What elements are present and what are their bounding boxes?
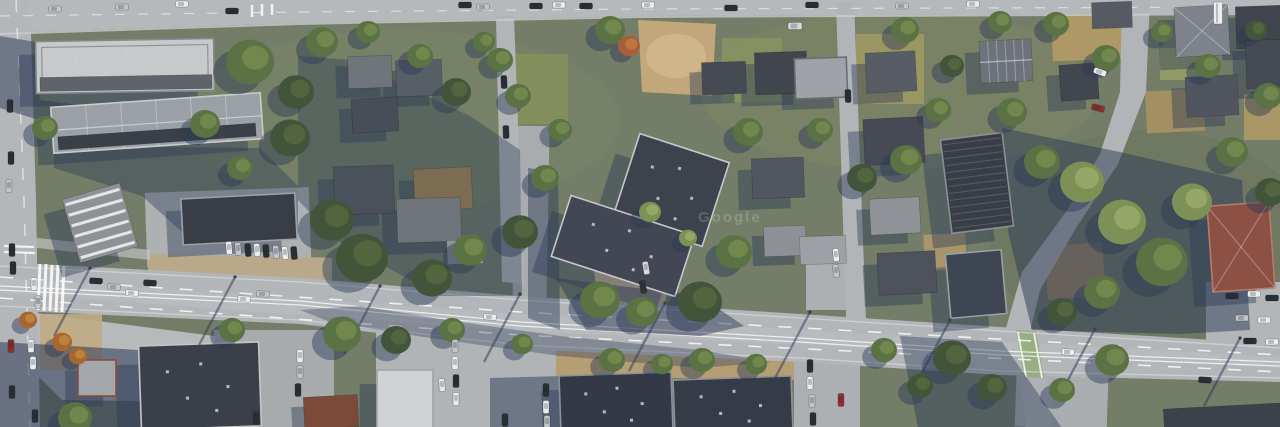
- roof: [1092, 1, 1133, 28]
- car: [810, 413, 816, 426]
- car: [477, 4, 490, 10]
- roof-vent: [748, 420, 751, 423]
- house: [1092, 1, 1133, 28]
- car: [9, 386, 15, 399]
- car-glass: [898, 4, 904, 8]
- car: [9, 244, 15, 257]
- car-glass: [839, 396, 843, 402]
- tree-canopy-highlight: [480, 35, 492, 46]
- white-commercial-building: [377, 370, 433, 427]
- car-glass: [298, 368, 302, 374]
- car-glass: [227, 244, 232, 250]
- car: [1226, 293, 1239, 299]
- car: [580, 3, 593, 9]
- roof: [751, 157, 804, 199]
- roof: [701, 61, 746, 95]
- roof-vent: [226, 385, 229, 388]
- car: [295, 384, 301, 397]
- car: [453, 375, 459, 388]
- car-glass: [544, 386, 548, 392]
- roof-vent: [75, 56, 78, 59]
- car: [553, 2, 566, 8]
- car: [459, 2, 472, 8]
- tree-canopy-highlight: [464, 238, 483, 255]
- long-dark-building: [941, 133, 1014, 234]
- car: [35, 296, 41, 309]
- car: [806, 2, 819, 8]
- car-glass: [92, 279, 98, 283]
- car-glass: [1238, 316, 1244, 320]
- car: [237, 296, 250, 303]
- car-glass: [532, 4, 538, 8]
- roof: [377, 370, 433, 427]
- car: [483, 314, 496, 321]
- car-glass: [246, 246, 251, 252]
- car: [6, 180, 12, 193]
- tree-canopy-highlight: [283, 124, 305, 144]
- car: [290, 246, 297, 259]
- tree-canopy-highlight: [608, 351, 622, 364]
- car-glass: [228, 9, 234, 13]
- car-glass: [9, 342, 13, 348]
- car: [967, 1, 980, 7]
- tree-canopy-highlight: [236, 159, 250, 172]
- car: [1258, 317, 1271, 323]
- car-glass: [808, 362, 812, 368]
- car-glass: [240, 297, 246, 301]
- car-glass: [453, 342, 457, 348]
- tree-canopy-highlight: [1057, 302, 1074, 317]
- tree-canopy-highlight: [1052, 15, 1066, 28]
- roof: [869, 197, 921, 236]
- house: [869, 197, 921, 236]
- tree-canopy-highlight: [200, 114, 217, 129]
- car-glass: [1246, 339, 1252, 343]
- tree-canopy-highlight: [816, 121, 830, 134]
- car: [125, 290, 138, 297]
- tree-canopy-highlight: [514, 220, 534, 238]
- car-glass: [461, 3, 467, 7]
- car-glass: [834, 267, 839, 273]
- car-glass: [453, 359, 457, 365]
- dark-building: [945, 250, 1006, 319]
- tree-canopy-highlight: [25, 314, 35, 323]
- roof-vent: [199, 362, 202, 365]
- car-glass: [292, 249, 297, 255]
- car: [30, 357, 36, 370]
- car: [89, 278, 102, 285]
- car-glass: [1260, 318, 1266, 322]
- car-glass: [31, 359, 35, 365]
- car: [225, 241, 232, 254]
- car: [845, 89, 851, 102]
- car: [807, 377, 813, 390]
- car-glass: [454, 395, 458, 401]
- tree-canopy-highlight: [1185, 188, 1207, 208]
- car-glass: [811, 415, 815, 421]
- car-glass: [555, 3, 561, 7]
- tree-canopy-highlight: [325, 205, 349, 227]
- car-glass: [834, 251, 839, 257]
- car-glass: [110, 285, 116, 289]
- car-glass: [503, 416, 507, 422]
- car: [244, 243, 251, 256]
- car: [896, 3, 909, 9]
- tree-canopy-highlight: [540, 168, 555, 182]
- dirt-lot-light: [646, 34, 706, 78]
- tree-canopy-highlight: [728, 240, 748, 258]
- tree-canopy-highlight: [242, 46, 268, 70]
- car-glass: [1268, 296, 1274, 300]
- car: [1061, 349, 1074, 356]
- car-glass: [296, 386, 300, 392]
- car-glass: [33, 412, 37, 418]
- aerial-satellite-view: Google: [0, 0, 1280, 427]
- car-glass: [969, 2, 975, 6]
- car-glass: [298, 352, 302, 358]
- car-glass: [283, 249, 288, 255]
- tree-canopy-highlight: [556, 122, 569, 134]
- car: [453, 393, 459, 406]
- tree-canopy-highlight: [41, 119, 55, 132]
- tree-canopy-highlight: [416, 47, 430, 60]
- utility-pole: [808, 310, 811, 313]
- tree-canopy-highlight: [1252, 23, 1264, 34]
- tree-canopy-highlight: [685, 232, 695, 241]
- tree-canopy-highlight: [448, 321, 462, 334]
- car-glass: [440, 381, 445, 387]
- roof: [1245, 39, 1280, 88]
- tree-canopy-highlight: [901, 149, 919, 165]
- car-glass: [486, 315, 492, 319]
- roof-vent: [125, 51, 128, 54]
- house: [701, 61, 746, 95]
- car-glass: [808, 3, 814, 7]
- car: [452, 340, 458, 353]
- red-roof-apartment: [1207, 202, 1275, 292]
- tree-canopy-highlight: [317, 31, 335, 47]
- tree-canopy-highlight: [1204, 57, 1218, 70]
- tree-canopy-highlight: [948, 58, 961, 70]
- car: [7, 100, 13, 113]
- car-glass: [9, 154, 13, 160]
- car: [544, 416, 550, 427]
- tree-canopy-highlight: [900, 20, 915, 34]
- apartment-block-b: [673, 376, 793, 427]
- car-glass: [791, 24, 798, 29]
- house: [751, 157, 804, 199]
- car: [438, 378, 445, 391]
- car: [226, 8, 239, 14]
- dark-commercial-building: [181, 193, 297, 245]
- tree-canopy-highlight: [1106, 348, 1125, 365]
- car-glass: [846, 92, 850, 98]
- car: [1266, 295, 1279, 301]
- tree-canopy-highlight: [1114, 206, 1140, 230]
- roof-vent: [719, 412, 722, 415]
- roof-vent: [603, 410, 606, 413]
- roof-vent: [630, 419, 633, 422]
- tree-canopy-highlight: [364, 24, 377, 36]
- tree-canopy-highlight: [69, 406, 88, 423]
- car: [28, 340, 34, 353]
- car: [788, 23, 802, 30]
- car-glass: [29, 342, 33, 348]
- car: [809, 395, 815, 408]
- car-glass: [264, 247, 269, 253]
- car: [49, 6, 62, 12]
- roof: [181, 193, 297, 245]
- tree-canopy-highlight: [698, 351, 712, 364]
- tree-canopy-highlight: [693, 287, 717, 309]
- roof-vent: [164, 65, 167, 68]
- tree-canopy-highlight: [593, 286, 615, 306]
- house-light-roof: [794, 57, 847, 99]
- car: [725, 5, 738, 11]
- car: [32, 410, 38, 423]
- roof: [559, 372, 673, 427]
- utility-pole: [233, 275, 236, 278]
- car: [838, 394, 844, 407]
- roof-vent: [186, 396, 189, 399]
- tree-canopy-highlight: [743, 122, 760, 137]
- car-glass: [1216, 3, 1218, 23]
- car: [281, 246, 288, 259]
- car-glass: [504, 128, 508, 134]
- utility-pole: [663, 301, 666, 304]
- tree-canopy-highlight: [353, 240, 382, 266]
- tree-canopy-highlight: [1096, 280, 1116, 298]
- tree-canopy-highlight: [658, 357, 670, 368]
- car-glass: [10, 388, 14, 394]
- car-glass: [32, 280, 36, 286]
- car-glass: [51, 7, 57, 11]
- house: [979, 39, 1033, 84]
- tree-canopy-highlight: [496, 51, 510, 64]
- roof: [351, 97, 399, 133]
- roof: [303, 395, 359, 427]
- tree-canopy-highlight: [391, 330, 408, 345]
- tree-canopy-highlight: [1075, 167, 1099, 189]
- tree-canopy-highlight: [646, 205, 658, 216]
- car-glass: [1228, 294, 1234, 298]
- tree-canopy-highlight: [880, 341, 894, 354]
- car: [832, 264, 839, 277]
- car-glass: [1201, 378, 1207, 382]
- roof-vent: [584, 392, 587, 395]
- car-glass: [544, 403, 548, 409]
- car-glass: [255, 246, 260, 252]
- car-glass: [8, 102, 12, 108]
- rust-roof-building: [303, 395, 359, 427]
- roof: [877, 251, 937, 296]
- car: [116, 4, 129, 10]
- car-glass: [808, 379, 812, 385]
- industrial-south-band: [40, 75, 212, 92]
- car: [262, 244, 269, 257]
- apartment-building-sw: [139, 342, 262, 427]
- roof-vent: [641, 402, 644, 405]
- utility-pole: [1238, 336, 1241, 339]
- roof: [794, 57, 847, 99]
- car-glass: [502, 78, 506, 84]
- roof: [396, 197, 461, 243]
- car: [502, 414, 508, 427]
- car: [530, 3, 543, 9]
- roof-vent: [215, 409, 218, 412]
- red-trim-building: [78, 360, 116, 396]
- tree-canopy-highlight: [916, 377, 930, 390]
- car-glass: [810, 397, 814, 403]
- car-glass: [178, 2, 184, 6]
- car: [297, 366, 303, 379]
- tree-canopy-highlight: [857, 168, 874, 183]
- tree-canopy-highlight: [1101, 48, 1116, 62]
- car: [176, 1, 189, 7]
- tree-canopy-highlight: [451, 82, 468, 97]
- car: [1236, 315, 1249, 321]
- car: [253, 243, 260, 256]
- apartment-block-a: [559, 372, 673, 427]
- car: [10, 262, 16, 275]
- utility-pole: [88, 266, 91, 269]
- house: [351, 97, 399, 133]
- tree-canopy-highlight: [625, 39, 637, 50]
- tree-canopy-highlight: [605, 20, 622, 35]
- roof: [139, 342, 262, 427]
- roof-vent: [104, 73, 107, 76]
- roof: [673, 376, 793, 427]
- house: [1245, 39, 1280, 88]
- car: [8, 152, 14, 165]
- roof: [347, 55, 392, 89]
- tree-canopy-highlight: [1263, 86, 1278, 100]
- tree-canopy-highlight: [228, 321, 242, 334]
- car-glass: [274, 248, 279, 254]
- car-glass: [479, 5, 485, 9]
- car-glass: [727, 6, 733, 10]
- tree-canopy-highlight: [1007, 102, 1024, 117]
- car-glass: [1064, 350, 1070, 354]
- utility-pole: [948, 318, 951, 321]
- car-glass: [1268, 340, 1274, 344]
- roof: [40, 75, 212, 92]
- car: [832, 248, 839, 261]
- car: [253, 412, 259, 425]
- tree-canopy-highlight: [752, 357, 764, 368]
- tree-canopy-highlight: [1153, 244, 1182, 270]
- tree-canopy-highlight: [1227, 141, 1245, 157]
- roof-vent: [615, 387, 618, 390]
- car: [1244, 338, 1257, 344]
- car-glass: [10, 246, 14, 252]
- car-glass: [36, 298, 40, 304]
- tree-canopy-highlight: [637, 301, 655, 317]
- roof-vent: [700, 395, 703, 398]
- tree-canopy-highlight: [996, 14, 1009, 26]
- car-glass: [128, 291, 134, 295]
- roof-vent: [759, 404, 762, 407]
- car-glass: [545, 418, 549, 424]
- utility-pole: [1093, 327, 1096, 330]
- car-glass: [454, 377, 458, 383]
- roof: [945, 250, 1006, 319]
- satellite-photo-canvas: [0, 0, 1280, 427]
- tree-canopy-highlight: [987, 378, 1004, 393]
- utility-pole: [518, 292, 521, 295]
- tree-canopy-highlight: [1036, 150, 1056, 168]
- car: [1248, 291, 1261, 297]
- car-glass: [7, 182, 11, 188]
- car: [501, 75, 507, 88]
- tree-canopy-highlight: [59, 335, 70, 345]
- house: [877, 251, 937, 296]
- tree-canopy-highlight: [934, 101, 948, 114]
- car: [8, 340, 14, 353]
- car: [807, 360, 813, 373]
- car-glass: [254, 414, 258, 420]
- car-glass: [582, 4, 588, 8]
- car-glass: [236, 245, 241, 251]
- roof: [865, 51, 917, 94]
- tree-canopy-highlight: [514, 87, 528, 100]
- car: [452, 357, 458, 370]
- utility-pole: [378, 284, 381, 287]
- car: [256, 291, 269, 298]
- roof-vent: [166, 370, 169, 373]
- car: [503, 125, 509, 138]
- car: [272, 245, 279, 258]
- car: [543, 384, 549, 397]
- tree-canopy-highlight: [946, 345, 967, 364]
- car: [107, 284, 120, 291]
- car: [642, 2, 655, 8]
- tree-canopy-highlight: [1158, 25, 1170, 36]
- tree-canopy-highlight: [425, 264, 447, 284]
- car-glass: [118, 5, 124, 9]
- car: [1266, 339, 1279, 345]
- roof: [78, 360, 116, 396]
- house: [347, 55, 392, 89]
- tree-canopy-highlight: [1058, 381, 1072, 394]
- car-glass: [259, 292, 265, 296]
- car-glass: [11, 264, 15, 270]
- roof-vent: [732, 390, 735, 393]
- car-glass: [1250, 292, 1256, 296]
- tree-canopy-highlight: [75, 350, 85, 359]
- car: [543, 401, 549, 414]
- car: [31, 278, 37, 291]
- house: [865, 51, 917, 94]
- tree-canopy-highlight: [518, 337, 530, 348]
- house: [396, 197, 461, 243]
- car: [143, 280, 156, 287]
- car-glass: [644, 3, 650, 7]
- car: [1214, 2, 1223, 24]
- car: [1198, 377, 1211, 384]
- car: [297, 350, 303, 363]
- tree-canopy-highlight: [290, 80, 310, 98]
- car: [234, 242, 241, 255]
- car-glass: [146, 281, 152, 285]
- tree-canopy-highlight: [336, 321, 357, 340]
